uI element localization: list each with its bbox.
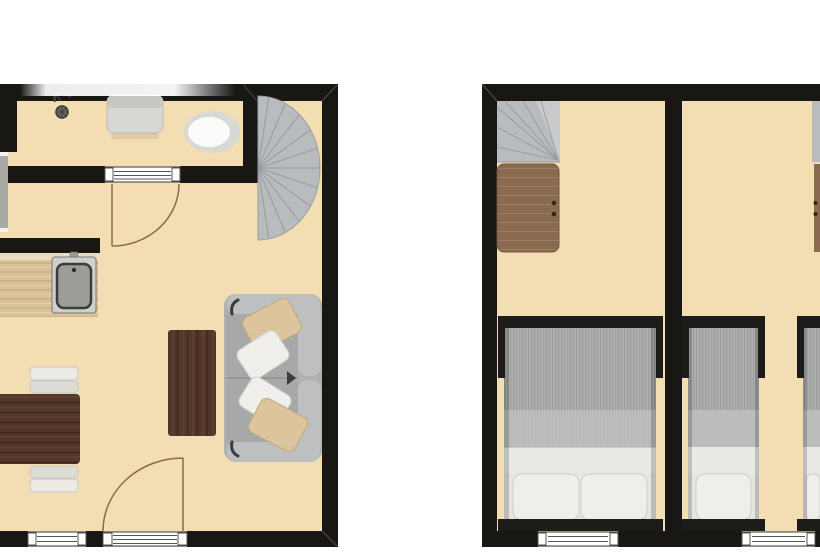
wall-bottom-2 bbox=[618, 531, 742, 547]
sofa bbox=[224, 294, 322, 462]
bathroom-door-jamb-left bbox=[105, 168, 113, 181]
ground-floor-plan bbox=[0, 81, 338, 547]
single-bed-2-footboard bbox=[797, 519, 820, 531]
window-jamb-left bbox=[28, 533, 36, 545]
desk-cropped-knob-1 bbox=[814, 201, 818, 205]
double-bed-footboard bbox=[498, 519, 663, 531]
chair-seat bbox=[30, 466, 78, 478]
chair-seat bbox=[30, 381, 78, 393]
single-bed-2-post-left bbox=[797, 316, 804, 378]
shower-head-spokes bbox=[55, 105, 69, 119]
window-upper-1 bbox=[538, 532, 618, 546]
window-jamb-right bbox=[78, 533, 86, 545]
bathroom-door-threshold bbox=[105, 167, 180, 182]
dining-table-grain bbox=[0, 394, 80, 464]
chair-back bbox=[30, 367, 78, 380]
desk-grain bbox=[497, 164, 559, 252]
desk-cropped-knob-2 bbox=[814, 212, 818, 216]
single-bed-1-sheet bbox=[688, 447, 759, 473]
left-side-door-jamb-top bbox=[0, 152, 8, 156]
wall-left-upper bbox=[0, 84, 17, 152]
left-side-door bbox=[0, 152, 8, 232]
wall-bathroom-bottom-left bbox=[0, 166, 105, 183]
kitchen-faucet-base bbox=[70, 252, 78, 257]
coffee-table-grain bbox=[168, 330, 216, 436]
double-bed-post-right bbox=[656, 316, 663, 378]
floorplan-image bbox=[0, 0, 820, 560]
desk-knob-2 bbox=[552, 212, 557, 217]
dining-chair-bottom bbox=[30, 466, 78, 492]
window-jamb-right bbox=[807, 533, 815, 545]
entry-door-jamb-right bbox=[178, 533, 187, 545]
double-bed-band-texture bbox=[504, 410, 656, 447]
single-bed-1-headboard bbox=[682, 316, 765, 328]
window-ground-bottom bbox=[28, 532, 86, 546]
double-bed-duvet-texture bbox=[504, 327, 656, 410]
single-bed-1-pillow bbox=[696, 474, 751, 520]
sofa-backrest-1 bbox=[298, 302, 321, 376]
single-bed-1-blanket-band bbox=[688, 410, 759, 447]
window-frame bbox=[742, 532, 815, 546]
toilet-bowl bbox=[188, 117, 230, 147]
entry-door-jamb-left bbox=[103, 533, 112, 545]
desk-cropped bbox=[814, 164, 820, 252]
window-frame bbox=[538, 532, 618, 546]
upper-floor-plan bbox=[482, 84, 820, 547]
single-bed-1-duvet-texture bbox=[688, 327, 759, 410]
dining-chair-top bbox=[30, 367, 78, 393]
left-side-door-leaf bbox=[0, 152, 8, 232]
coffee-table bbox=[168, 330, 216, 436]
single-bed-1-footboard bbox=[682, 519, 765, 531]
stair-landing bbox=[497, 101, 560, 162]
window-jamb-left bbox=[742, 533, 750, 545]
vanity-shadow bbox=[111, 133, 159, 139]
chair-back bbox=[30, 479, 78, 492]
double-bed-headboard bbox=[498, 316, 663, 328]
double-bed-pillow-right bbox=[581, 474, 647, 520]
wall-bottom-1 bbox=[482, 531, 538, 547]
kitchen-faucet-icon bbox=[72, 268, 76, 272]
double-bed-sheet bbox=[504, 447, 656, 473]
window-jamb-right bbox=[610, 533, 618, 545]
double-bed-shade-right bbox=[651, 327, 656, 522]
single-bed-1 bbox=[682, 316, 765, 531]
window-frame bbox=[28, 532, 86, 546]
floorplan-canvas bbox=[0, 0, 820, 560]
stair-landing-cropped bbox=[812, 101, 820, 162]
white-fade-overlay bbox=[20, 81, 235, 96]
wall-left bbox=[482, 84, 497, 547]
double-bed-post-left bbox=[498, 316, 505, 378]
wall-kitchen bbox=[0, 238, 100, 253]
left-side-door-jamb-bottom bbox=[0, 228, 8, 232]
single-bed-2-pillow bbox=[806, 474, 820, 520]
wall-bottom-left-corner bbox=[0, 531, 28, 547]
bathroom-door-jamb-right bbox=[172, 168, 180, 181]
desk bbox=[497, 164, 559, 252]
single-bed-1-post-right bbox=[758, 316, 765, 378]
bathroom-vanity bbox=[107, 95, 163, 139]
kitchen-sink bbox=[52, 252, 96, 313]
wall-bottom-main bbox=[187, 531, 338, 547]
kitchen bbox=[0, 252, 98, 317]
double-bed-pillow-left bbox=[513, 474, 579, 520]
wall-room-divider bbox=[665, 84, 682, 547]
desk-knob-1 bbox=[552, 201, 557, 206]
wall-top bbox=[482, 84, 820, 101]
window-upper-2 bbox=[742, 532, 815, 546]
double-bed bbox=[498, 316, 663, 531]
window-jamb-left bbox=[538, 533, 546, 545]
wall-bottom-3 bbox=[815, 531, 820, 547]
vanity-backsplash bbox=[107, 95, 163, 108]
toilet bbox=[184, 111, 240, 153]
wall-bottom-pier bbox=[86, 531, 103, 547]
single-bed-1-post-left bbox=[682, 316, 689, 378]
wall-right bbox=[322, 84, 338, 547]
